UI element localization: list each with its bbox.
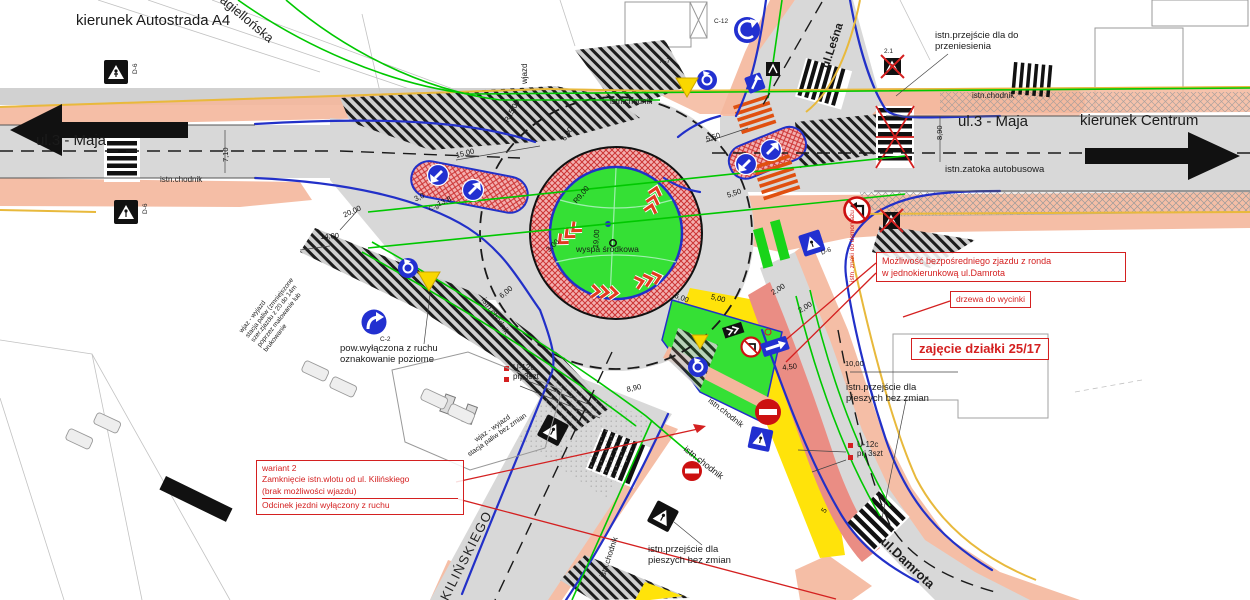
roundabout-site-plan: kierunek Autostrada A4 kierunek Centrum …	[0, 0, 1250, 600]
ped-crossing-sign-blue	[747, 426, 773, 452]
plan-drawing	[0, 0, 1250, 600]
label-chodnik-top: istn.chodnik	[610, 97, 652, 106]
sign-code-21: 2.1	[884, 48, 893, 56]
roundabout-sign-c12	[734, 17, 760, 43]
label-zatoka: istn.zatoka autobusowa	[945, 164, 1044, 175]
note-mozliwosc: Możliwość bezpośredniego zjazdu z ronda …	[876, 252, 1126, 282]
sign-to-remove	[880, 209, 903, 232]
dim: 8,90	[936, 125, 945, 140]
legend-u12c-1: U-12cprj 3szt	[513, 363, 539, 382]
turn-right-sign-c2	[362, 310, 387, 335]
sign-code-c2: C-2	[380, 336, 390, 344]
street-maja-west: ul.3 - Maja	[36, 132, 106, 150]
mini-roundabout-sign	[398, 258, 418, 278]
ped-crossing-sign	[647, 500, 679, 532]
label-przejscie-bz-south: istn.przejście dlapieszych bez zmian	[648, 544, 731, 566]
dim: 4,50	[782, 362, 797, 372]
note-demontaz: istn. znaki do demontażu	[849, 210, 857, 282]
no-entry-sign	[755, 399, 781, 425]
no-turn-sign-small	[742, 338, 761, 357]
keep-left-sign	[761, 140, 782, 161]
ped-crossing-sign	[104, 60, 128, 84]
sign-back-board	[766, 62, 780, 76]
dim: 19,00	[592, 229, 602, 248]
sign-code-d6: D-6	[132, 64, 140, 74]
sign-code-a7: A-7	[660, 58, 670, 66]
label-przejscie-bz-east: istn.przejście dlapieszych bez zmian	[846, 382, 929, 404]
dim: 7,10	[222, 147, 231, 162]
legend-u12c-2: U-12cprj 3szt	[857, 440, 883, 459]
note-wariant2: wariant 2 Zamknięcie istn.wlotu od ul. K…	[256, 460, 464, 515]
closed-wall-bar	[159, 476, 232, 522]
label-przejscie-przeniesienie: istn.przejście dla doprzeniesienia	[935, 30, 1018, 52]
cars	[65, 360, 476, 450]
sign-to-remove	[881, 55, 904, 78]
label-chodnik-w: istn.chodnik	[160, 175, 202, 184]
label-pow-wylaczona: pow.wyłączona z ruchuoznakowanie poziome	[340, 343, 438, 365]
label-wjazd: wjazd	[520, 64, 529, 84]
mini-roundabout-sign	[697, 70, 717, 90]
direction-centrum: kierunek Centrum	[1080, 112, 1198, 130]
sign-code-d6: D-6	[142, 204, 150, 214]
keep-left-sign	[463, 180, 484, 201]
note-drzewa: drzewa do wycinki	[950, 291, 1031, 308]
direction-autostrada: kierunek Autostrada A4	[76, 12, 230, 30]
label-wyspa-srodkowa: wyspa środkowa	[576, 244, 639, 254]
label-chodnik-e: istn.chodnik	[972, 91, 1014, 100]
note-zajecie: zajęcie działki 25/17	[911, 338, 1049, 360]
keep-right-sign	[428, 165, 449, 186]
dim: 10,00	[845, 360, 864, 369]
mini-roundabout-sign	[688, 357, 708, 377]
sign-code-c12: C-12	[714, 18, 728, 26]
street-maja-east: ul.3 - Maja	[958, 113, 1028, 131]
dim: 14,00	[320, 232, 339, 242]
ped-crossing-sign	[114, 200, 138, 224]
keep-right-sign	[736, 154, 757, 175]
